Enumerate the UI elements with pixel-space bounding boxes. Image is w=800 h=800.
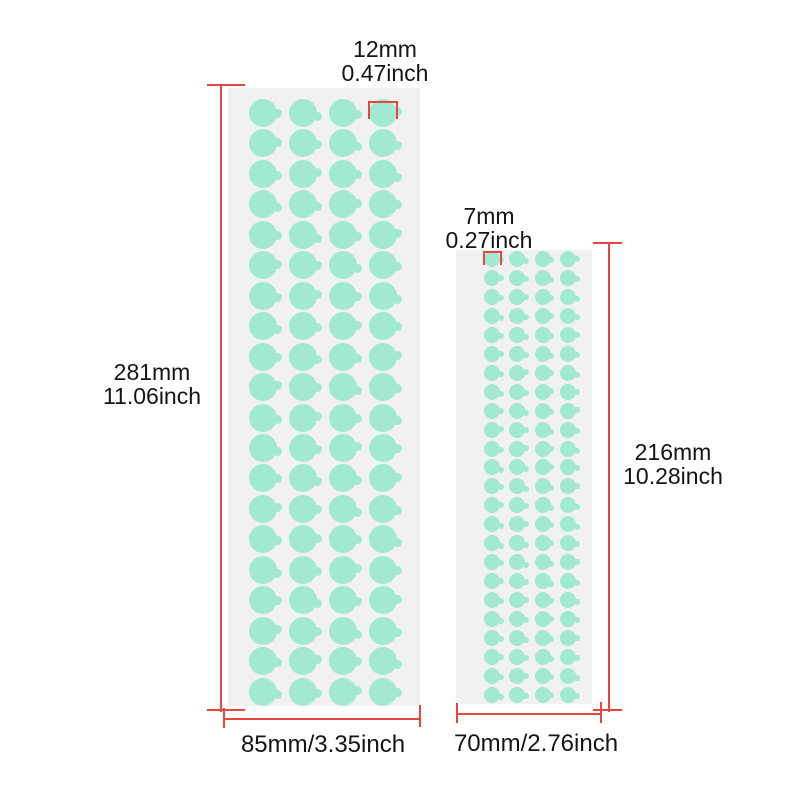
sticker-dot-tab bbox=[313, 412, 322, 421]
sticker-dot bbox=[509, 422, 525, 438]
sticker-dot-tab bbox=[353, 597, 362, 606]
sticker-dot-tab bbox=[548, 561, 554, 567]
sticker-dot bbox=[560, 365, 576, 381]
sticker-dot-tab bbox=[523, 673, 529, 679]
sticker-dot bbox=[560, 289, 576, 305]
sticker-dot-tab bbox=[574, 617, 580, 623]
sticker-dot-tab bbox=[548, 485, 554, 491]
large-sticker-sheet bbox=[228, 88, 420, 706]
sticker-dot-tab bbox=[273, 625, 282, 634]
sticker-dot bbox=[369, 373, 397, 401]
sticker-dot bbox=[509, 611, 525, 627]
small-dot-size-label: 7mm 0.27inch bbox=[446, 204, 533, 252]
sticker-dot-tab bbox=[393, 173, 402, 182]
sticker-dot bbox=[369, 586, 397, 614]
sticker-dot-tab bbox=[273, 109, 282, 118]
small-sheet-height-top-tick bbox=[593, 242, 622, 244]
sticker-dot-tab bbox=[273, 690, 282, 699]
sticker-dot bbox=[484, 554, 500, 570]
sticker-dot bbox=[560, 478, 576, 494]
sticker-dot-tab bbox=[273, 381, 282, 390]
sticker-dot bbox=[249, 312, 277, 340]
sticker-dot bbox=[249, 160, 277, 188]
sticker-dot bbox=[484, 289, 500, 305]
sticker-dot bbox=[329, 525, 357, 553]
small-sheet-width-label: 70mm/2.76inch bbox=[454, 732, 618, 756]
sticker-dot-tab bbox=[523, 562, 529, 568]
sticker-dot bbox=[509, 384, 525, 400]
sticker-dot-tab bbox=[523, 597, 529, 603]
sticker-dot-tab bbox=[498, 523, 504, 529]
sticker-dot bbox=[509, 327, 525, 343]
small-height-mm: 216mm bbox=[623, 440, 723, 464]
sticker-dot-tab bbox=[498, 467, 504, 473]
sticker-dot-tab bbox=[574, 276, 580, 282]
sticker-dot bbox=[535, 270, 551, 286]
large-sheet-height-top-tick bbox=[207, 84, 245, 86]
sticker-dot bbox=[329, 586, 357, 614]
small-sheet-width-right-tick bbox=[600, 702, 602, 723]
sticker-dot bbox=[484, 270, 500, 286]
sticker-dot-tab bbox=[574, 448, 580, 454]
sticker-dot bbox=[535, 649, 551, 665]
sticker-dot bbox=[249, 495, 277, 523]
sticker-dot-tab bbox=[523, 486, 529, 492]
sticker-dot bbox=[560, 668, 576, 684]
sticker-dot-tab bbox=[498, 578, 504, 584]
sticker-dot-tab bbox=[353, 110, 362, 119]
sticker-dot bbox=[560, 611, 576, 627]
sticker-dot-tab bbox=[548, 370, 554, 376]
sticker-dot bbox=[329, 251, 357, 279]
sticker-dot-tab bbox=[498, 426, 504, 432]
sticker-dot-tab bbox=[574, 559, 580, 565]
sticker-dot bbox=[509, 308, 525, 324]
sticker-dot bbox=[509, 687, 525, 703]
sticker-dot bbox=[249, 647, 277, 675]
sticker-dot-tab bbox=[273, 658, 282, 667]
sticker-dot bbox=[560, 270, 576, 286]
large-sheet-width-label: 85mm/3.35inch bbox=[241, 733, 405, 757]
sticker-dot bbox=[484, 403, 500, 419]
sticker-dot-tab bbox=[393, 141, 402, 150]
sticker-dot-tab bbox=[523, 655, 529, 661]
large-dot-size-bracket bbox=[368, 101, 398, 119]
sticker-dot bbox=[249, 434, 277, 462]
sticker-dot bbox=[560, 649, 576, 665]
sticker-dot-tab bbox=[574, 675, 580, 681]
sticker-dot bbox=[369, 404, 397, 432]
sticker-dot bbox=[560, 535, 576, 551]
sticker-dot-tab bbox=[393, 566, 402, 575]
sticker-dot-tab bbox=[273, 293, 282, 302]
sticker-dot bbox=[369, 678, 397, 706]
sticker-dot-tab bbox=[313, 323, 322, 332]
sticker-dot bbox=[535, 422, 551, 438]
small-dot-size-bracket bbox=[483, 251, 502, 265]
sticker-dot-tab bbox=[273, 447, 282, 456]
sticker-dot-tab bbox=[273, 325, 282, 334]
sticker-dot bbox=[329, 373, 357, 401]
sticker-dot-tab bbox=[574, 332, 580, 338]
sticker-dot bbox=[535, 497, 551, 513]
sticker-dot-tab bbox=[313, 534, 322, 543]
sticker-dot bbox=[535, 592, 551, 608]
sticker-dot bbox=[509, 289, 525, 305]
sticker-dot-tab bbox=[523, 410, 529, 416]
sticker-dot bbox=[484, 573, 500, 589]
sticker-dot bbox=[249, 221, 277, 249]
sticker-dot-tab bbox=[393, 295, 402, 304]
sticker-dot-tab bbox=[498, 636, 504, 642]
sticker-dot-tab bbox=[353, 199, 362, 208]
sticker-dot bbox=[289, 251, 317, 279]
sticker-dot-tab bbox=[498, 560, 504, 566]
sticker-dot bbox=[509, 668, 525, 684]
sticker-dot-tab bbox=[523, 637, 529, 643]
sticker-dot bbox=[329, 434, 357, 462]
sticker-dot-tab bbox=[498, 333, 504, 339]
sticker-dot-tab bbox=[574, 635, 580, 641]
sticker-dot bbox=[509, 592, 525, 608]
sticker-dot-tab bbox=[353, 686, 362, 695]
sticker-dot bbox=[484, 327, 500, 343]
sticker-dot-tab bbox=[498, 618, 504, 624]
large-dot-size-mm: 12mm bbox=[342, 37, 429, 61]
small-sheet-width-line bbox=[457, 713, 602, 715]
sticker-dot-tab bbox=[523, 258, 529, 264]
sticker-dot bbox=[369, 464, 397, 492]
sticker-dot-tab bbox=[498, 694, 504, 700]
sticker-dot-tab bbox=[273, 474, 282, 483]
sticker-dot-tab bbox=[273, 353, 282, 362]
sticker-dot-tab bbox=[313, 627, 322, 636]
sticker-dot-tab bbox=[313, 599, 322, 608]
sticker-dot bbox=[535, 384, 551, 400]
sticker-dot bbox=[560, 403, 576, 419]
sticker-dot-tab bbox=[393, 538, 402, 547]
sticker-dot-tab bbox=[313, 290, 322, 299]
sticker-dot bbox=[369, 617, 397, 645]
sticker-dot bbox=[289, 160, 317, 188]
sticker-dot-tab bbox=[574, 314, 580, 320]
sticker-dot-tab bbox=[548, 353, 554, 359]
sticker-dot bbox=[535, 668, 551, 684]
sticker-dot bbox=[249, 556, 277, 584]
sticker-dot-tab bbox=[548, 674, 554, 680]
sticker-dot bbox=[289, 617, 317, 645]
sticker-dot bbox=[329, 221, 357, 249]
sticker-dot bbox=[329, 343, 357, 371]
sticker-dot-tab bbox=[574, 693, 580, 699]
sticker-dot-tab bbox=[353, 142, 362, 151]
sticker-dot-tab bbox=[574, 504, 580, 510]
small-sheet-height-label: 216mm 10.28inch bbox=[623, 440, 723, 488]
sticker-dot bbox=[484, 592, 500, 608]
sticker-dot bbox=[289, 343, 317, 371]
sticker-dot bbox=[249, 129, 277, 157]
sticker-dot-tab bbox=[393, 444, 402, 453]
sticker-dot bbox=[249, 251, 277, 279]
sticker-dot bbox=[484, 459, 500, 475]
large-sheet-width-line bbox=[224, 718, 421, 720]
sticker-dot-tab bbox=[353, 657, 362, 666]
sticker-dot-tab bbox=[498, 654, 504, 660]
sticker-dot bbox=[560, 573, 576, 589]
sticker-dot bbox=[560, 497, 576, 513]
sticker-dot-tab bbox=[574, 541, 580, 547]
sticker-dot-tab bbox=[548, 429, 554, 435]
sticker-dot bbox=[509, 573, 525, 589]
sticker-dot bbox=[509, 365, 525, 381]
sticker-dot-tab bbox=[313, 383, 322, 392]
sticker-dot-tab bbox=[548, 540, 554, 546]
sticker-dot-tab bbox=[548, 522, 554, 528]
sticker-dot-tab bbox=[523, 314, 529, 320]
sticker-dot-tab bbox=[548, 598, 554, 604]
sticker-dot-tab bbox=[353, 508, 362, 517]
sticker-dot-tab bbox=[498, 543, 504, 549]
sticker-dot bbox=[369, 160, 397, 188]
sticker-dot bbox=[484, 668, 500, 684]
sticker-dot bbox=[369, 190, 397, 218]
sticker-dot-tab bbox=[393, 322, 402, 331]
sticker-dot bbox=[484, 478, 500, 494]
sticker-dot-tab bbox=[313, 567, 322, 576]
sticker-dot-tab bbox=[548, 409, 554, 415]
sticker-dot bbox=[249, 586, 277, 614]
sticker-dot-tab bbox=[393, 595, 402, 604]
sticker-dot-tab bbox=[313, 505, 322, 514]
sticker-dot bbox=[369, 129, 397, 157]
sticker-dot bbox=[289, 647, 317, 675]
sticker-dot-tab bbox=[523, 276, 529, 282]
sticker-dot bbox=[484, 441, 500, 457]
sticker-dot bbox=[369, 647, 397, 675]
sticker-dot bbox=[560, 554, 576, 570]
sticker-dot bbox=[369, 343, 397, 371]
sticker-dot bbox=[369, 312, 397, 340]
sticker-dot bbox=[509, 403, 525, 419]
sticker-dot bbox=[249, 190, 277, 218]
sticker-dot bbox=[484, 346, 500, 362]
sticker-dot bbox=[484, 365, 500, 381]
sticker-dot-tab bbox=[273, 415, 282, 424]
sticker-dot bbox=[560, 459, 576, 475]
sticker-dot-tab bbox=[548, 464, 554, 470]
sticker-dot bbox=[289, 282, 317, 310]
sticker-dot bbox=[535, 346, 551, 362]
sticker-dot bbox=[560, 687, 576, 703]
sticker-dot-tab bbox=[498, 447, 504, 453]
sticker-dot bbox=[329, 160, 357, 188]
sticker-dot-tab bbox=[353, 170, 362, 179]
sticker-dot bbox=[509, 516, 525, 532]
sticker-dot-tab bbox=[548, 277, 554, 283]
sticker-dot-tab bbox=[273, 569, 282, 578]
sticker-dot bbox=[535, 403, 551, 419]
sticker-dot bbox=[289, 312, 317, 340]
small-dot-size-mm: 7mm bbox=[446, 204, 533, 228]
sticker-dot bbox=[509, 441, 525, 457]
sticker-dot bbox=[249, 678, 277, 706]
sticker-dot bbox=[249, 99, 277, 127]
large-dot-size-inch: 0.47inch bbox=[342, 61, 429, 85]
small-sheet-height-line bbox=[608, 243, 610, 712]
sticker-dot-tab bbox=[313, 445, 322, 454]
sticker-dot bbox=[289, 221, 317, 249]
sticker-dot-tab bbox=[548, 616, 554, 622]
sticker-dot bbox=[560, 251, 576, 267]
sticker-dot-tab bbox=[313, 477, 322, 486]
sticker-dot bbox=[560, 630, 576, 646]
sticker-dot bbox=[249, 404, 277, 432]
large-height-inch: 11.06inch bbox=[103, 384, 201, 408]
sticker-dot bbox=[289, 190, 317, 218]
sticker-dot bbox=[509, 478, 525, 494]
sticker-dot bbox=[509, 270, 525, 286]
sticker-dot-tab bbox=[548, 505, 554, 511]
sticker-dot bbox=[369, 434, 397, 462]
sticker-dot bbox=[509, 346, 525, 362]
sticker-dot bbox=[329, 99, 357, 127]
sticker-dot-tab bbox=[273, 260, 282, 269]
sticker-dot-tab bbox=[574, 655, 580, 661]
sticker-dot-tab bbox=[498, 295, 504, 301]
sticker-dot-tab bbox=[498, 351, 504, 357]
sticker-dot-tab bbox=[523, 693, 529, 699]
sticker-dot bbox=[369, 282, 397, 310]
sticker-dot bbox=[509, 459, 525, 475]
sticker-dot bbox=[289, 586, 317, 614]
sticker-dot bbox=[484, 649, 500, 665]
sticker-dot bbox=[249, 617, 277, 645]
sticker-dot bbox=[289, 404, 317, 432]
sticker-dot bbox=[289, 678, 317, 706]
sticker-dot-tab bbox=[498, 598, 504, 604]
sticker-dot bbox=[509, 630, 525, 646]
sticker-dot-tab bbox=[313, 655, 322, 664]
sticker-dot bbox=[535, 611, 551, 627]
sticker-dot bbox=[560, 346, 576, 362]
sticker-dot-tab bbox=[313, 689, 322, 698]
large-dot-size-label: 12mm 0.47inch bbox=[342, 37, 429, 85]
large-sheet-height-bottom-tick bbox=[207, 709, 245, 711]
sticker-dot bbox=[249, 373, 277, 401]
sticker-dot bbox=[484, 384, 500, 400]
sticker-dot-tab bbox=[523, 445, 529, 451]
sticker-dot bbox=[484, 497, 500, 513]
sticker-dot bbox=[369, 495, 397, 523]
sticker-dot bbox=[484, 535, 500, 551]
sticker-dot bbox=[560, 516, 576, 532]
sticker-dot-tab bbox=[353, 442, 362, 451]
large-sheet-height-line bbox=[220, 85, 222, 712]
sticker-dot-tab bbox=[353, 476, 362, 485]
sticker-dot bbox=[329, 678, 357, 706]
sticker-dot-tab bbox=[548, 295, 554, 301]
sticker-dot bbox=[289, 464, 317, 492]
sticker-dot bbox=[289, 129, 317, 157]
sticker-dot-tab bbox=[548, 581, 554, 587]
sticker-dot bbox=[535, 554, 551, 570]
sticker-dot-tab bbox=[313, 168, 322, 177]
sticker-dot-tab bbox=[273, 503, 282, 512]
sticker-dot bbox=[535, 441, 551, 457]
sticker-dot bbox=[535, 459, 551, 475]
small-sheet-height-bottom-tick bbox=[593, 709, 622, 711]
sticker-dot-tab bbox=[523, 294, 529, 300]
sticker-dot bbox=[535, 535, 551, 551]
sticker-dot-tab bbox=[313, 261, 322, 270]
sticker-dot-tab bbox=[273, 138, 282, 147]
sticker-dot-tab bbox=[548, 388, 554, 394]
sticker-dot-tab bbox=[548, 446, 554, 452]
sticker-dot bbox=[249, 525, 277, 553]
sticker-dot-tab bbox=[393, 660, 402, 669]
sticker-dot bbox=[535, 687, 551, 703]
sticker-dot-tab bbox=[393, 688, 402, 697]
sticker-dot-tab bbox=[393, 200, 402, 209]
sticker-dot bbox=[560, 308, 576, 324]
sticker-dot-tab bbox=[353, 292, 362, 301]
sticker-dot bbox=[249, 282, 277, 310]
sticker-dot bbox=[369, 556, 397, 584]
sticker-dot bbox=[484, 308, 500, 324]
sticker-dot-tab bbox=[574, 599, 580, 605]
sticker-dot-tab bbox=[548, 257, 554, 263]
sticker-dot bbox=[369, 525, 397, 553]
sticker-dot bbox=[509, 497, 525, 513]
large-sheet-height-label: 281mm 11.06inch bbox=[103, 360, 201, 408]
sticker-dot-tab bbox=[548, 692, 554, 698]
sticker-dot-tab bbox=[523, 466, 529, 472]
sticker-dot-tab bbox=[273, 171, 282, 180]
sticker-dot-tab bbox=[548, 656, 554, 662]
sticker-dot-tab bbox=[273, 536, 282, 545]
sticker-dot bbox=[289, 556, 317, 584]
sticker-dot-tab bbox=[498, 502, 504, 508]
sticker-dot bbox=[329, 647, 357, 675]
sticker-dot bbox=[329, 282, 357, 310]
sticker-dot bbox=[329, 556, 357, 584]
sticker-dot-tab bbox=[574, 296, 580, 302]
sticker-dot bbox=[535, 251, 551, 267]
sticker-dot-tab bbox=[313, 112, 322, 121]
sticker-dot bbox=[560, 327, 576, 343]
sticker-dot bbox=[484, 516, 500, 532]
sticker-dot-tab bbox=[313, 202, 322, 211]
sticker-dot-tab bbox=[498, 315, 504, 321]
sticker-dot-tab bbox=[393, 384, 402, 393]
sticker-dot-tab bbox=[393, 506, 402, 515]
sticker-dot bbox=[560, 384, 576, 400]
small-sheet-width-left-tick bbox=[456, 703, 458, 723]
sticker-dot bbox=[329, 495, 357, 523]
sticker-dot-tab bbox=[574, 256, 580, 262]
sticker-dot-tab bbox=[548, 313, 554, 319]
sticker-dot-tab bbox=[393, 229, 402, 238]
sticker-dot-tab bbox=[498, 408, 504, 414]
sticker-dot bbox=[535, 327, 551, 343]
sticker-dot-tab bbox=[523, 617, 529, 623]
sticker-dot bbox=[289, 495, 317, 523]
sticker-dot bbox=[509, 251, 525, 267]
sticker-dot-tab bbox=[548, 636, 554, 642]
sticker-dot bbox=[289, 525, 317, 553]
sticker-dot-tab bbox=[523, 369, 529, 375]
sticker-dot bbox=[560, 422, 576, 438]
